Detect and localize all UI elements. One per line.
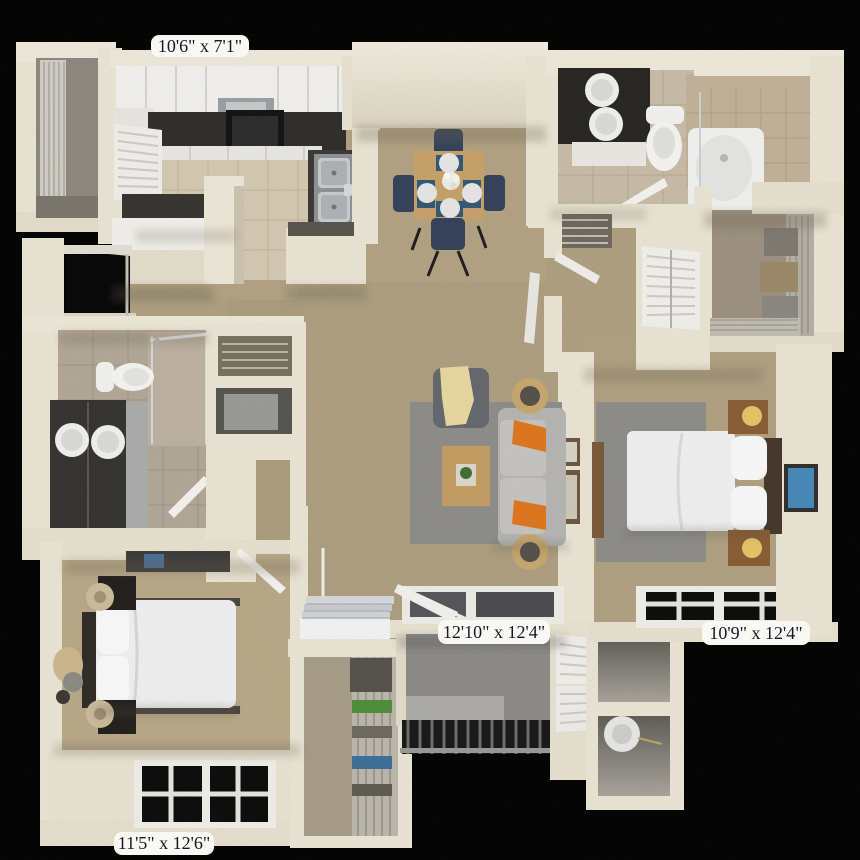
svg-text:10'6" x 7'1": 10'6" x 7'1" [158, 36, 242, 56]
svg-text:11'5" x 12'6": 11'5" x 12'6" [118, 833, 211, 853]
svg-text:10'9" x 12'4": 10'9" x 12'4" [709, 623, 802, 643]
svg-text:12'10" x 12'4": 12'10" x 12'4" [443, 622, 545, 642]
